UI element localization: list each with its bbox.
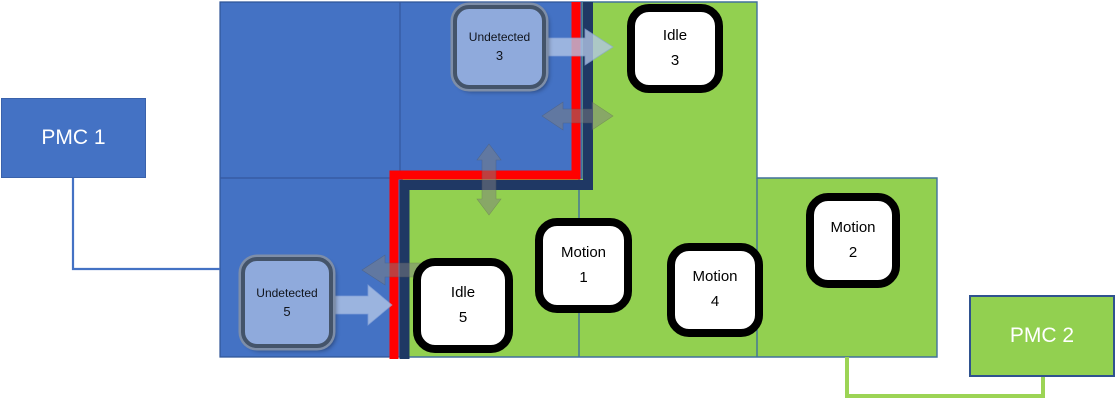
- state-diagram: Undetected 3 Idle 3 Undetected 5 Idle 5 …: [0, 0, 1115, 403]
- state-box-motion-2: Motion 2: [806, 193, 900, 288]
- state-number: 1: [579, 266, 587, 291]
- state-number: 5: [283, 302, 290, 322]
- state-name: Undetected: [469, 28, 530, 46]
- state-box-undetected-5: Undetected 5: [241, 257, 333, 348]
- pmc2-label: PMC 2: [1010, 324, 1074, 348]
- state-number: 2: [849, 241, 857, 266]
- state-name: Motion: [830, 216, 875, 241]
- state-number: 3: [671, 49, 679, 74]
- state-number: 3: [496, 46, 503, 66]
- pmc1-label: PMC 1: [41, 126, 105, 150]
- state-name: Motion: [561, 241, 606, 266]
- state-name: Idle: [663, 24, 687, 49]
- diagram-background: [0, 0, 1115, 403]
- state-name: Motion: [692, 265, 737, 290]
- pmc1-label-box: PMC 1: [1, 98, 146, 178]
- pmc1-connector-line: [73, 178, 220, 269]
- pmc2-label-box: PMC 2: [969, 295, 1115, 377]
- state-box-idle-3: Idle 3: [627, 4, 723, 93]
- state-name: Undetected: [256, 284, 317, 302]
- state-number: 4: [711, 290, 719, 315]
- state-box-idle-5: Idle 5: [413, 258, 513, 353]
- state-number: 5: [459, 306, 467, 331]
- state-box-motion-1: Motion 1: [535, 218, 632, 313]
- state-box-undetected-3: Undetected 3: [453, 5, 546, 89]
- state-name: Idle: [451, 281, 475, 306]
- state-box-motion-4: Motion 4: [667, 243, 763, 337]
